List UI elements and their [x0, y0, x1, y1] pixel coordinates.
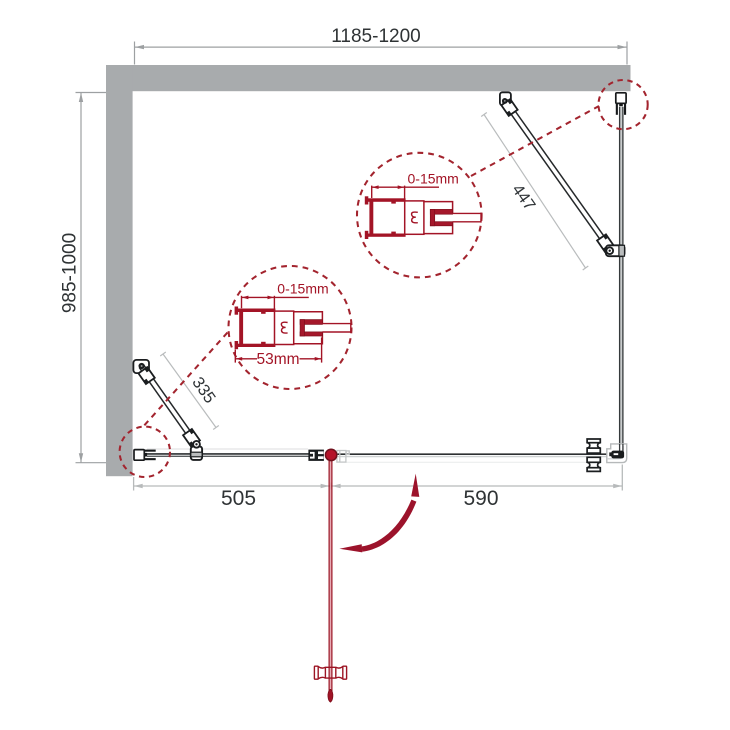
svg-text:53mm: 53mm [256, 351, 299, 368]
svg-text:0-15mm: 0-15mm [408, 170, 459, 186]
svg-text:985-1000: 985-1000 [60, 233, 81, 313]
svg-text:505: 505 [221, 487, 256, 510]
svg-text:590: 590 [463, 487, 498, 510]
svg-text:1185-1200: 1185-1200 [331, 26, 420, 47]
